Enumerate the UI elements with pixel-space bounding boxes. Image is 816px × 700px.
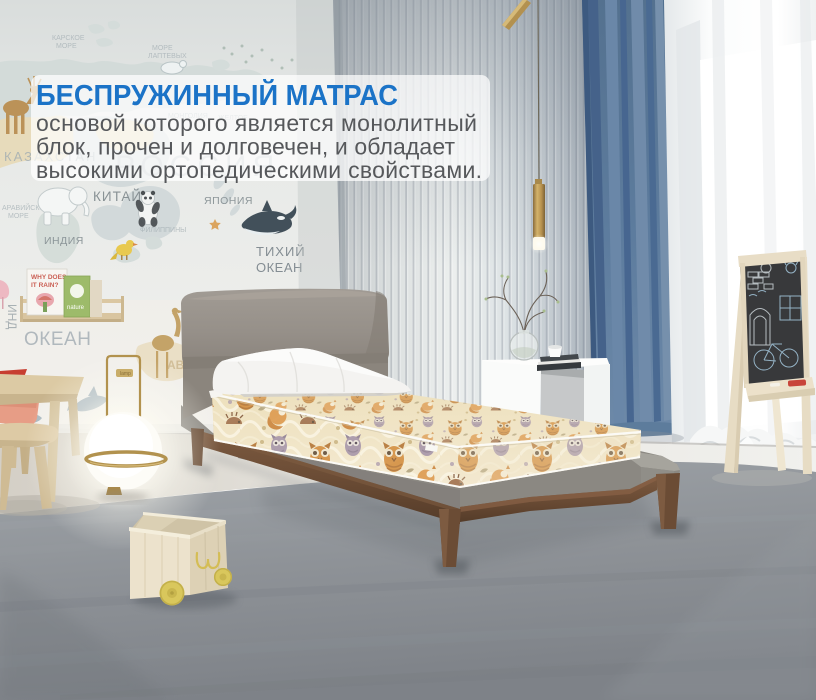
svg-text:БЕСПРУЖИННЫЙ МАТРАС: БЕСПРУЖИННЫЙ МАТРАС (36, 79, 398, 112)
svg-text:nature: nature (67, 305, 85, 311)
svg-text:ОКЕАН: ОКЕАН (24, 329, 91, 350)
svg-text:основой которого является моно: основой которого является монолитный (36, 110, 477, 136)
svg-text:МОРЕ: МОРЕ (56, 43, 77, 50)
svg-text:ЯПОНИЯ: ЯПОНИЯ (204, 195, 253, 207)
svg-text:МОРЕ: МОРЕ (8, 213, 29, 220)
svg-text:КИТАЙ: КИТАЙ (93, 189, 142, 204)
svg-text:lamp: lamp (120, 371, 131, 377)
svg-text:ТИХИЙ: ТИХИЙ (256, 244, 306, 259)
svg-text:ОКЕАН: ОКЕАН (256, 260, 303, 275)
svg-text:WHY DOES: WHY DOES (31, 274, 67, 281)
svg-text:ИНДИЯ: ИНДИЯ (44, 235, 84, 247)
svg-text:блок, прочен и долговечен, и о: блок, прочен и долговечен, и обладает (36, 134, 455, 160)
svg-text:IT RAIN?: IT RAIN? (31, 282, 58, 289)
svg-text:МОРЕ: МОРЕ (152, 45, 173, 52)
svg-text:ИНД: ИНД (5, 304, 19, 329)
svg-text:ФИЛИППИНЫ: ФИЛИППИНЫ (140, 227, 186, 234)
svg-text:КАРСКОЕ: КАРСКОЕ (52, 35, 85, 42)
svg-text:высокими ортопедическими свойс: высокими ортопедическими свойствами. (36, 157, 482, 183)
svg-text:ЛАПТЕВЫХ: ЛАПТЕВЫХ (148, 53, 187, 60)
